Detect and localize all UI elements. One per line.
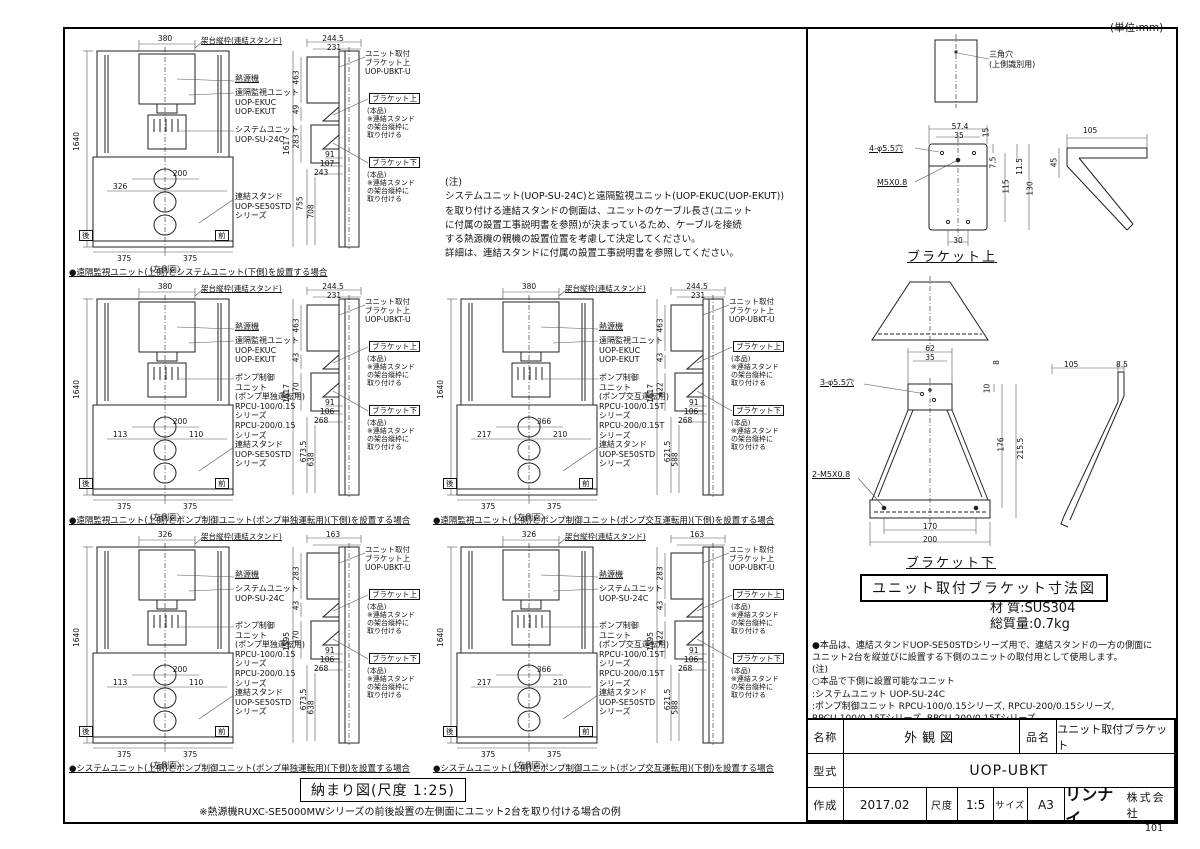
label-upper-unit: 遠隔監視ユニット UOP-EKUC UOP-EKUT [235, 88, 299, 117]
callout-bracket-lower-body: (本品) ※連結スタンド の架台縦枠に 取り付ける [367, 171, 415, 203]
rear-marker: 後 [443, 726, 457, 737]
dim-bt-side-45: 45 [1049, 158, 1058, 168]
dim-side-upper: 283 [656, 566, 665, 580]
dim-side-h2: 106 [684, 655, 698, 664]
dim-base-right: 375 [183, 254, 197, 263]
dim-side-h3: 268 [678, 416, 692, 425]
created-label: 作成 [808, 788, 844, 821]
dim-side-total: 1595 [282, 632, 291, 651]
label-frame-upright: 架台縦枠(連結スタンド) [565, 284, 646, 293]
callout-bracket-upper-body: (本品) ※連結スタンド の架台縦枠に 取り付ける [367, 107, 415, 139]
dim-bb-62: 62 [907, 344, 953, 353]
bracket-upper-drawing: 三角穴 (上側識別用) 57.4 35 4-φ5.5穴 M5X0.8 15 7.… [815, 32, 1175, 272]
dim-base-left: 375 [481, 750, 495, 759]
installation-figure: 326 架台縦枠(連結スタンド) 1640 熱源機 システムユニット UOP-S… [441, 533, 811, 783]
scale-label: 尺度 [927, 788, 959, 821]
dim-side-h2: 106 [684, 407, 698, 416]
dim-bb-10: 10 [982, 384, 991, 394]
dim-bb-side-8-5: 8.5 [1116, 360, 1128, 369]
dim-side-h1: 91 [325, 646, 335, 655]
dim-top-width: 326 [135, 530, 195, 539]
callout-bracket-upper-title: ブラケット上 [369, 93, 420, 104]
callout-bracket-upper-body: (本品) ※連結スタンド の架台縦枠に 取り付ける [367, 355, 415, 387]
dim-mid-a: 366 [527, 665, 561, 674]
callout-bracket-lower-body: (本品) ※連結スタンド の架台縦枠に 取り付ける [367, 667, 415, 699]
product-value: ユニット取付ブラケット [1057, 720, 1174, 753]
label-upper-unit: システムユニット UOP-SU-24C [235, 584, 299, 603]
label-bt-thread: M5X0.8 [877, 178, 907, 188]
dim-mid-b: 217 [477, 430, 491, 439]
dim-bt-130: 130 [1026, 181, 1035, 195]
rear-marker: 後 [79, 478, 93, 489]
dim-side-gap: 43 [291, 601, 300, 611]
label-triangle-hole: 三角穴 (上側識別用) [989, 50, 1035, 69]
bracket-lower-linework [812, 272, 1172, 572]
dim-side-b2: 588 [671, 452, 680, 466]
title-block-row-model: 型式 UOP-UBKT [808, 754, 1174, 788]
product-label: 品名 [1020, 720, 1058, 753]
label-upper-unit: 遠隔監視ユニット UOP-EKUC UOP-EKUT [235, 336, 299, 365]
dim-side-lower: 370 [292, 382, 301, 396]
title-block: 名称 外観図 品名 ユニット取付ブラケット 型式 UOP-UBKT 作成 201… [806, 718, 1176, 822]
dim-mid-c: 210 [553, 430, 567, 439]
dim-side-top-width2: 231 [307, 43, 361, 52]
dim-side-h2: 106 [320, 407, 334, 416]
bracket-lower-title: ブラケット下 [906, 556, 996, 572]
dim-base-left: 375 [117, 750, 131, 759]
callout-bracket-upper-body: (本品) ※連結スタンド の架台縦枠に 取り付ける [731, 603, 779, 635]
installation-figure: 326 架台縦枠(連結スタンド) 1640 熱源機 システムユニット UOP-S… [77, 533, 447, 783]
company-suffix: 株式会社 [1127, 789, 1174, 821]
dim-base-right: 375 [183, 750, 197, 759]
label-stand: 連結スタンド UOP-SE50STD シリーズ [235, 192, 291, 221]
installation-figure: 380 架台縦枠(連結スタンド) 1640 熱源機 遠隔監視ユニット UOP-E… [77, 285, 447, 535]
dim-side-b2: 708 [307, 204, 316, 218]
dim-base-right: 375 [547, 502, 561, 511]
bracket-dimension-figure-title: ユニット取付ブラケット寸法図 [860, 574, 1108, 602]
label-bb-holes: 3-φ5.5穴 [820, 378, 854, 388]
callout-bracket-lower-title: ブラケット下 [369, 653, 420, 664]
dim-side-h3: 268 [314, 416, 328, 425]
dim-top-width: 380 [499, 282, 559, 291]
figure-caption: ●システムユニット(上側)とポンプ制御ユニット(ポンプ単独運転用)(下側)を設置… [69, 764, 410, 774]
dim-top-width: 380 [135, 282, 195, 291]
dim-side-total: 1617 [282, 136, 291, 155]
installation-figures: 380 架台縦枠(連結スタンド) 1640 熱源機 遠隔監視ユニット UOP-E… [63, 27, 808, 820]
layout-figure-note: ※熱源機RUXC-SE5000MWシリーズの前後設置の左側面にユニット2台を取り… [90, 803, 730, 818]
dim-side-top-width: 163 [667, 530, 727, 539]
callout-bracket-lower-title: ブラケット下 [733, 653, 784, 664]
dim-side-h3: 268 [314, 664, 328, 673]
front-marker: 前 [215, 726, 229, 737]
dim-side-gap: 49 [291, 105, 300, 115]
size-value: A3 [1028, 788, 1066, 821]
model-value: UOP-UBKT [844, 754, 1174, 787]
front-marker: 前 [579, 478, 593, 489]
dim-side-upper: 463 [656, 318, 665, 332]
dim-side-h1: 91 [325, 150, 335, 159]
dim-side-top-width: 163 [303, 530, 363, 539]
front-marker: 前 [215, 230, 229, 241]
label-heat-source: 熱源機 [235, 74, 259, 84]
label-stand: 連結スタンド UOP-SE50STD シリーズ [235, 688, 291, 717]
dim-bb-215-5: 215.5 [1016, 438, 1025, 459]
dim-mid-c: 110 [189, 678, 203, 687]
callout-bracket-upper-body: (本品) ※連結スタンド の架台縦枠に 取り付ける [367, 603, 415, 635]
label-stand: 連結スタンド UOP-SE50STD シリーズ [599, 688, 655, 717]
dim-bt-115: 115 [1002, 179, 1011, 193]
figure-caption: ●システムユニット(上側)とポンプ制御ユニット(ポンプ交互運転用)(下側)を設置… [433, 764, 774, 774]
dim-base-left: 375 [481, 502, 495, 511]
dim-side-top-width2: 231 [307, 291, 361, 300]
dim-side-top-width: 244.5 [303, 282, 363, 291]
dim-base-left: 375 [117, 502, 131, 511]
callout-bracket-lower-title: ブラケット下 [733, 405, 784, 416]
dim-mid-c: 110 [189, 430, 203, 439]
dim-side-total: 1617 [282, 384, 291, 403]
label-unit-bracket: ユニット取付 ブラケット上 UOP-UBKT-U [365, 545, 411, 572]
label-heat-source: 熱源機 [235, 570, 259, 580]
dim-overall-height: 1640 [72, 380, 81, 399]
dim-base-right: 375 [547, 750, 561, 759]
label-bt-holes: 4-φ5.5穴 [869, 144, 903, 154]
dim-bb-side-105: 105 [1064, 360, 1078, 369]
label-frame-upright: 架台縦枠(連結スタンド) [565, 532, 646, 541]
dim-side-total: 1595 [646, 632, 655, 651]
dim-side-top-width: 244.5 [667, 282, 727, 291]
dim-side-lower: 370 [292, 630, 301, 644]
rear-marker: 後 [443, 478, 457, 489]
dim-side-lower: 422 [656, 630, 665, 644]
dim-bb-176: 176 [997, 437, 1006, 451]
dim-side-h2: 106 [320, 655, 334, 664]
dim-mid-b: 113 [113, 678, 127, 687]
layout-figure-title: 納まり図(尺度 1:25) [300, 778, 466, 802]
callout-bracket-lower-body: (本品) ※連結スタンド の架台縦枠に 取り付ける [367, 419, 415, 451]
label-unit-bracket: ユニット取付 ブラケット上 UOP-UBKT-U [729, 545, 775, 572]
dim-base-left: 375 [117, 254, 131, 263]
dim-side-upper: 463 [292, 318, 301, 332]
dim-side-lower: 422 [656, 382, 665, 396]
dim-side-top-width2: 231 [671, 291, 725, 300]
dim-side-h3: 268 [678, 664, 692, 673]
front-marker: 前 [579, 726, 593, 737]
general-notes: (注) システムユニット(UOP-SU-24C)と遠隔監視ユニット(UOP-EK… [445, 176, 805, 262]
label-stand: 連結スタンド UOP-SE50STD シリーズ [235, 440, 291, 469]
label-unit-bracket: ユニット取付 ブラケット上 UOP-UBKT-U [365, 297, 411, 324]
callout-bracket-upper-title: ブラケット上 [369, 589, 420, 600]
dim-bt-w-inner: 35 [937, 131, 981, 140]
dim-mid-b: 217 [477, 678, 491, 687]
created-value: 2017.02 [844, 788, 927, 821]
rear-marker: 後 [79, 230, 93, 241]
dim-side-upper: 283 [292, 566, 301, 580]
dim-overall-height: 1640 [436, 380, 445, 399]
dim-side-b2: 638 [307, 700, 316, 714]
bracket-lower-drawing: 62 35 3-φ5.5穴 8 10 176 215.5 2-M5X0.8 17… [812, 272, 1172, 572]
spec-material: 材 質:SUS304 [990, 601, 1075, 617]
dim-base-right: 375 [183, 502, 197, 511]
rear-marker: 後 [79, 726, 93, 737]
label-heat-source: 熱源機 [599, 322, 623, 332]
dim-side-lower: 283 [292, 134, 301, 148]
dim-side-b2: 588 [671, 700, 680, 714]
figure-caption: ●遠隔監視ユニット(上側)とシステムユニット(下側)を設置する場合 [69, 268, 327, 278]
dim-side-upper: 463 [292, 70, 301, 84]
dim-overall-height: 1640 [72, 132, 81, 151]
dim-mid-c: 210 [553, 678, 567, 687]
bracket-upper-title: ブラケット上 [907, 250, 997, 266]
label-heat-source: 熱源機 [235, 322, 259, 332]
page-number: 101 [1145, 823, 1163, 834]
figure-caption: ●遠隔監視ユニット(上側)とポンプ制御ユニット(ポンプ交互運転用)(下側)を設置… [433, 516, 774, 526]
dim-bb-200: 200 [906, 535, 954, 544]
model-label: 型式 [808, 754, 844, 787]
dim-overall-height: 1640 [72, 628, 81, 647]
label-frame-upright: 架台縦枠(連結スタンド) [201, 36, 282, 45]
installation-figure: 380 架台縦枠(連結スタンド) 1640 熱源機 遠隔監視ユニット UOP-E… [77, 37, 447, 287]
dim-side-h2: 107 [320, 159, 334, 168]
dim-side-total: 1617 [646, 384, 655, 403]
size-label: サイズ [994, 788, 1028, 821]
spec-weight: 総質量:0.7kg [990, 617, 1075, 633]
callout-bracket-lower-body: (本品) ※連結スタンド の架台縦枠に 取り付ける [731, 419, 779, 451]
dim-side-h1: 91 [689, 398, 699, 407]
label-upper-unit: システムユニット UOP-SU-24C [599, 584, 663, 603]
dim-overall-height: 1640 [436, 628, 445, 647]
company-logo: リンナイ [1065, 788, 1123, 821]
callout-bracket-lower-title: ブラケット下 [369, 157, 420, 168]
dim-mid-a: 200 [163, 169, 197, 178]
dim-side-top-width: 244.5 [303, 34, 363, 43]
label-stand: 連結スタンド UOP-SE50STD シリーズ [599, 440, 655, 469]
label-unit-bracket: ユニット取付 ブラケット上 UOP-UBKT-U [365, 49, 411, 76]
label-frame-upright: 架台縦枠(連結スタンド) [201, 284, 282, 293]
dim-mid-a: 200 [163, 665, 197, 674]
dim-side-gap: 43 [291, 353, 300, 363]
dim-bt-15: 15 [981, 128, 990, 138]
dim-side-gap: 43 [655, 353, 664, 363]
name-label: 名称 [808, 720, 844, 753]
dim-bt-11-5: 11.5 [1015, 158, 1024, 175]
front-marker: 前 [215, 478, 229, 489]
label-frame-upright: 架台縦枠(連結スタンド) [201, 532, 282, 541]
figure-caption: ●遠隔監視ユニット(上側)とポンプ制御ユニット(ポンプ単独運転用)(下側)を設置… [69, 516, 410, 526]
dim-mid-b: 113 [113, 430, 127, 439]
dim-mid-a: 200 [163, 417, 197, 426]
dim-bt-side-105: 105 [1083, 126, 1097, 135]
company-cell: リンナイ 株式会社 [1065, 788, 1174, 821]
dim-bb-170: 170 [906, 522, 954, 531]
dim-side-b1: 755 [296, 196, 305, 210]
callout-bracket-upper-body: (本品) ※連結スタンド の架台縦枠に 取り付ける [731, 355, 779, 387]
dim-bt-30: 30 [945, 236, 971, 245]
label-bb-thread: 2-M5X0.8 [812, 470, 850, 480]
dim-side-gap: 43 [655, 601, 664, 611]
callout-bracket-lower-title: ブラケット下 [369, 405, 420, 416]
label-unit-bracket: ユニット取付 ブラケット上 UOP-UBKT-U [729, 297, 775, 324]
label-heat-source: 熱源機 [599, 570, 623, 580]
dim-bt-w-outer: 57.4 [933, 122, 987, 131]
callout-bracket-upper-title: ブラケット上 [733, 341, 784, 352]
dim-top-width: 380 [135, 34, 195, 43]
callout-bracket-lower-body: (本品) ※連結スタンド の架台縦枠に 取り付ける [731, 667, 779, 699]
title-block-row-meta: 作成 2017.02 尺度 1:5 サイズ A3 リンナイ 株式会社 [808, 788, 1174, 821]
name-value: 外観図 [844, 720, 1020, 753]
title-block-row-name: 名称 外観図 品名 ユニット取付ブラケット [808, 720, 1174, 754]
spec-block: 材 質:SUS304 総質量:0.7kg [990, 601, 1075, 634]
dim-bb-8: 8 [992, 360, 1001, 365]
dim-top-width: 326 [499, 530, 559, 539]
dim-bb-35: 35 [911, 353, 949, 362]
dim-side-h3: 243 [314, 168, 328, 177]
scale-value: 1:5 [958, 788, 994, 821]
callout-bracket-upper-title: ブラケット上 [733, 589, 784, 600]
callout-bracket-upper-title: ブラケット上 [369, 341, 420, 352]
installation-figure: 380 架台縦枠(連結スタンド) 1640 熱源機 遠隔監視ユニット UOP-E… [441, 285, 811, 535]
dim-side-b2: 638 [307, 452, 316, 466]
dim-side-h1: 91 [689, 646, 699, 655]
dim-side-h1: 91 [325, 398, 335, 407]
dim-mid-a: 366 [527, 417, 561, 426]
label-upper-unit: 遠隔監視ユニット UOP-EKUC UOP-EKUT [599, 336, 663, 365]
dim-bt-7-5: 7.5 [988, 157, 997, 169]
dim-mid-b: 326 [113, 182, 127, 191]
